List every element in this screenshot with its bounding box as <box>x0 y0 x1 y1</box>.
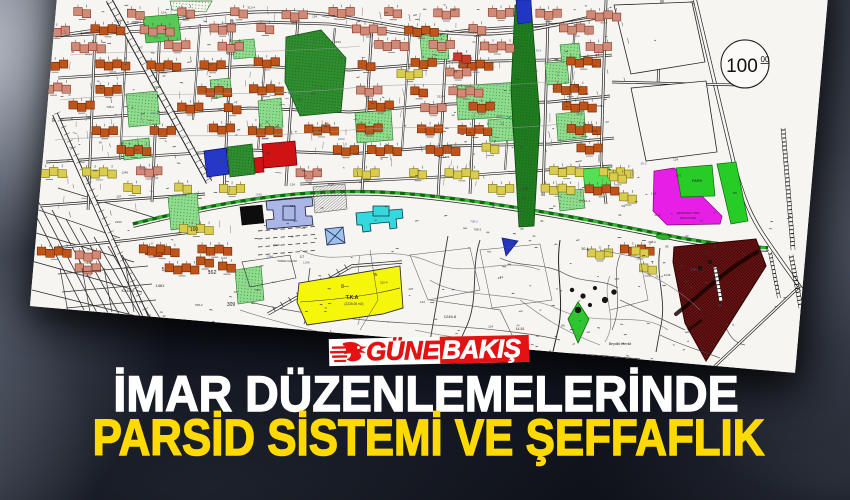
svg-text:124: 124 <box>183 17 188 21</box>
svg-text:124: 124 <box>161 10 166 14</box>
svg-text:124: 124 <box>704 250 709 254</box>
svg-text:708-2: 708-2 <box>648 240 656 244</box>
svg-text:44: 44 <box>234 290 238 294</box>
svg-text:35-2: 35-2 <box>641 162 647 166</box>
svg-text:1246: 1246 <box>255 192 262 196</box>
svg-text:124: 124 <box>651 191 656 195</box>
svg-text:107: 107 <box>451 8 456 12</box>
svg-text:86: 86 <box>230 18 234 22</box>
svg-text:86: 86 <box>454 70 458 74</box>
svg-text:1246: 1246 <box>664 273 671 277</box>
svg-text:124: 124 <box>153 174 158 178</box>
svg-text:5: 5 <box>162 267 165 273</box>
svg-text:2153: 2153 <box>496 115 503 119</box>
svg-text:44: 44 <box>486 230 490 234</box>
svg-text:2153: 2153 <box>131 21 138 25</box>
svg-text:124: 124 <box>288 91 293 95</box>
svg-text:2153: 2153 <box>338 137 345 141</box>
svg-text:124: 124 <box>290 183 295 187</box>
svg-text:86: 86 <box>99 140 103 144</box>
svg-text:00: 00 <box>761 55 770 64</box>
svg-text:2153: 2153 <box>154 85 161 89</box>
svg-text:14-61: 14-61 <box>516 327 525 331</box>
svg-text:107: 107 <box>408 287 413 291</box>
svg-text:44: 44 <box>370 33 374 37</box>
svg-text:162: 162 <box>207 270 216 276</box>
svg-text:2153: 2153 <box>273 243 280 247</box>
svg-text:1246: 1246 <box>303 261 310 265</box>
svg-text:1246: 1246 <box>220 256 227 260</box>
svg-text:124: 124 <box>290 204 295 208</box>
svg-text:PA: PA <box>733 191 737 195</box>
svg-text:ASARYACU TRD: ASARYACU TRD <box>676 211 700 215</box>
svg-text:312-4: 312-4 <box>437 94 445 98</box>
svg-text:1246: 1246 <box>328 182 335 186</box>
svg-text:107: 107 <box>255 288 260 292</box>
svg-text:35-2: 35-2 <box>262 137 268 141</box>
svg-text:312-4: 312-4 <box>582 199 590 203</box>
svg-text:86: 86 <box>266 152 270 156</box>
svg-text:PARK: PARK <box>692 178 703 183</box>
svg-text:86: 86 <box>518 211 522 215</box>
svg-text:124: 124 <box>176 232 181 236</box>
svg-text:1246: 1246 <box>591 129 598 133</box>
svg-text:124: 124 <box>300 226 305 230</box>
svg-text:312-4: 312-4 <box>380 280 388 284</box>
svg-text:2153: 2153 <box>334 40 341 44</box>
svg-text:TOREN ALANI: TOREN ALANI <box>277 259 297 263</box>
svg-text:124: 124 <box>673 158 678 162</box>
svg-text:44: 44 <box>618 213 622 217</box>
svg-text:708-2: 708-2 <box>470 219 478 223</box>
svg-text:1246: 1246 <box>443 155 450 159</box>
svg-text:107: 107 <box>311 92 316 96</box>
svg-text:2153: 2153 <box>114 19 121 23</box>
svg-text:107: 107 <box>116 194 121 198</box>
svg-text:708-2: 708-2 <box>195 303 203 307</box>
svg-text:44: 44 <box>540 219 544 223</box>
svg-text:30-4: 30-4 <box>581 247 588 251</box>
svg-text:8—: 8— <box>341 284 349 290</box>
svg-text:107: 107 <box>138 45 143 49</box>
svg-text:T.K.A: T.K.A <box>346 295 359 301</box>
svg-text:100: 100 <box>726 56 758 77</box>
svg-text:160: 160 <box>190 227 199 233</box>
svg-text:312-4: 312-4 <box>139 167 147 171</box>
svg-text:124: 124 <box>420 300 425 304</box>
svg-text:708-2: 708-2 <box>597 104 605 108</box>
svg-text:Beydibi Mevkii: Beydibi Mevkii <box>609 342 632 346</box>
svg-text:(2226.08 m2): (2226.08 m2) <box>344 302 363 306</box>
svg-text:12: 12 <box>162 314 166 318</box>
svg-text:12: 12 <box>712 278 716 282</box>
svg-text:17: 17 <box>300 254 305 259</box>
svg-text:86: 86 <box>665 245 669 249</box>
svg-text:86: 86 <box>561 324 565 328</box>
svg-text:1246: 1246 <box>121 171 128 175</box>
svg-text:312-4: 312-4 <box>655 274 663 278</box>
svg-text:124: 124 <box>312 14 317 18</box>
svg-text:708-2: 708-2 <box>106 105 114 109</box>
svg-text:708-2: 708-2 <box>574 85 582 89</box>
svg-text:STASYONU: STASYONU <box>680 216 696 220</box>
svg-text:708-2: 708-2 <box>474 228 482 232</box>
svg-text:2153: 2153 <box>115 220 122 224</box>
svg-text:35-2: 35-2 <box>654 213 660 217</box>
svg-text:44: 44 <box>718 304 722 308</box>
svg-text:708-2: 708-2 <box>690 267 698 271</box>
svg-text:1245-6: 1245-6 <box>444 314 457 319</box>
svg-text:107: 107 <box>614 277 619 281</box>
svg-text:309: 309 <box>227 302 236 308</box>
svg-text:K245-6: K245-6 <box>122 288 136 293</box>
svg-text:1461: 1461 <box>156 283 166 288</box>
svg-text:35-2: 35-2 <box>339 334 345 338</box>
svg-text:⋆: ⋆ <box>653 38 656 44</box>
svg-text:35-2: 35-2 <box>535 49 541 53</box>
svg-text:124: 124 <box>165 320 170 324</box>
svg-text:12: 12 <box>501 122 505 126</box>
svg-text:12: 12 <box>500 275 504 279</box>
svg-text:2153: 2153 <box>521 187 528 191</box>
svg-text:35-2: 35-2 <box>675 174 681 178</box>
svg-text:124: 124 <box>488 324 493 328</box>
svg-text:312-4: 312-4 <box>247 6 255 10</box>
